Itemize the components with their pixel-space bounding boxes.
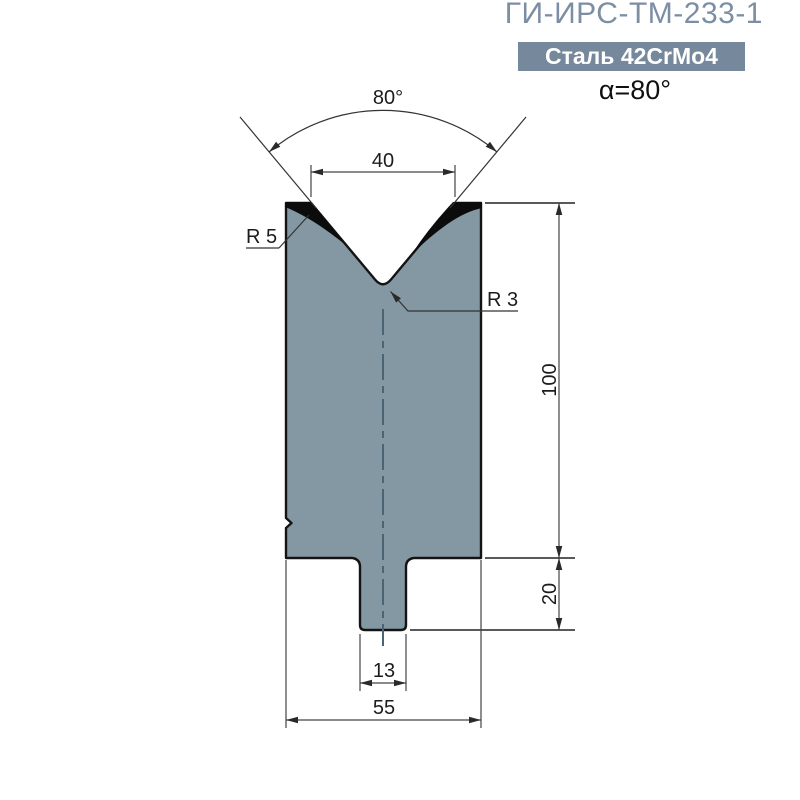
leader-vee-radius-label: R 3 — [487, 289, 518, 311]
dim-tang-height-label: 20 — [539, 583, 561, 605]
die-drawing: 80° 40 R 5 R 3 100 20 — [0, 0, 800, 800]
dim-tang-width-label: 13 — [373, 660, 395, 682]
dim-body-height-label: 100 — [539, 363, 561, 396]
leader-shoulder-radius-label: R 5 — [246, 226, 277, 248]
dim-vee-angle-label: 80° — [373, 87, 403, 109]
dim-body-height — [485, 203, 575, 558]
dim-vee-opening-label: 40 — [372, 150, 394, 172]
dim-body-width-label: 55 — [373, 697, 395, 719]
drawing-canvas: ГИ-ИРС-ТМ-233-1 Сталь 42CrMo4 α=80° 80° — [0, 0, 800, 800]
